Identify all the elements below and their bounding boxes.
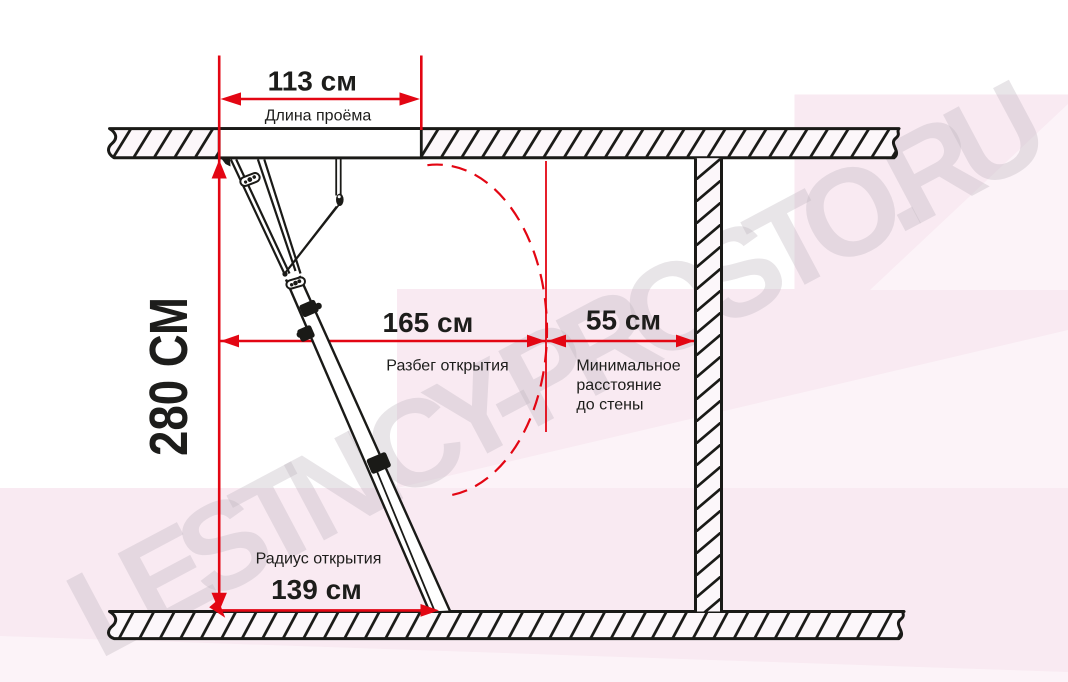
svg-text:Минимальное: Минимальное	[576, 358, 680, 375]
svg-text:113 см: 113 см	[268, 65, 357, 96]
svg-text:139 см: 139 см	[271, 574, 362, 605]
svg-text:165 см: 165 см	[383, 307, 474, 338]
svg-text:55 см: 55 см	[586, 305, 661, 336]
svg-text:280 СМ: 280 СМ	[139, 297, 199, 456]
svg-text:Радиус открытия: Радиус открытия	[256, 551, 382, 568]
svg-text:до стены: до стены	[576, 397, 643, 414]
svg-text:Разбег открытия: Разбег открытия	[386, 358, 508, 375]
svg-text:расстояние: расстояние	[576, 377, 661, 394]
svg-text:Длина проёма: Длина проёма	[265, 108, 372, 125]
